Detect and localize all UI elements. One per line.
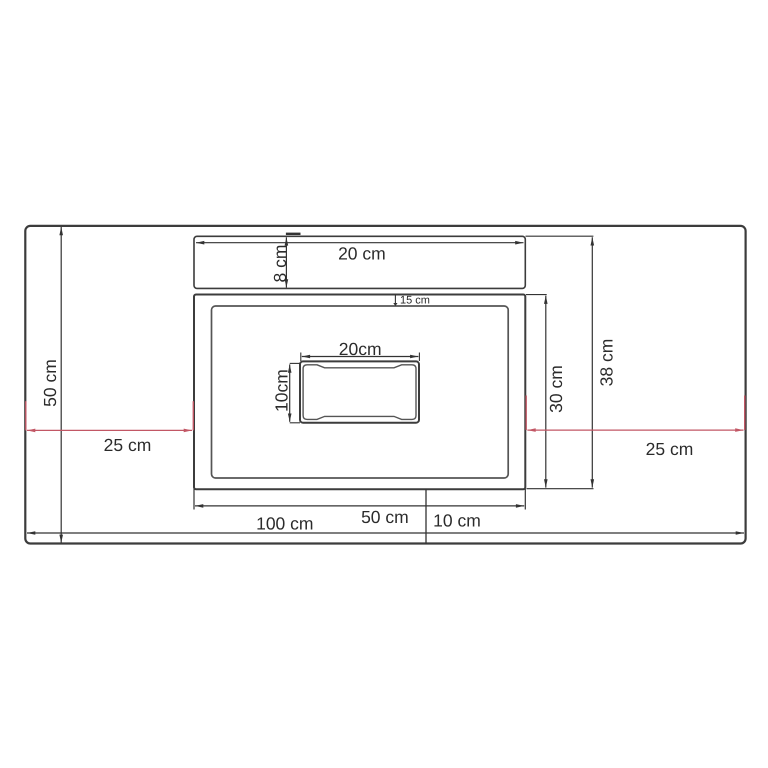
svg-text:25 cm: 25 cm — [104, 435, 152, 455]
svg-text:20cm: 20cm — [339, 339, 382, 359]
svg-text:50 cm: 50 cm — [361, 507, 409, 527]
svg-text:20 cm: 20 cm — [338, 244, 386, 264]
svg-text:10 cm: 10 cm — [433, 511, 481, 531]
svg-text:15 cm: 15 cm — [400, 295, 430, 307]
svg-text:10cm: 10cm — [272, 369, 292, 412]
svg-text:100 cm: 100 cm — [256, 513, 313, 533]
svg-text:38 cm: 38 cm — [596, 339, 616, 387]
svg-text:50 cm: 50 cm — [40, 359, 60, 407]
svg-text:30 cm: 30 cm — [546, 365, 566, 413]
svg-text:25 cm: 25 cm — [646, 439, 694, 459]
svg-text:8 cm: 8 cm — [270, 245, 290, 283]
